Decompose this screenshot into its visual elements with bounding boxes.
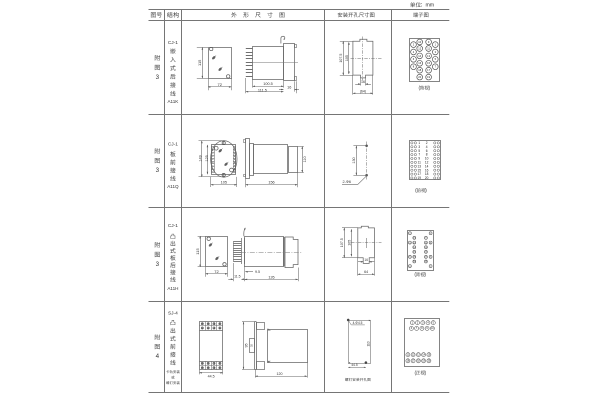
- svg-text:A11Q: A11Q: [167, 184, 179, 189]
- svg-text:2-Φ6: 2-Φ6: [343, 180, 352, 184]
- svg-text:9.5: 9.5: [255, 270, 260, 274]
- svg-text:72: 72: [217, 82, 222, 87]
- svg-text:A11K: A11K: [167, 99, 179, 104]
- svg-text:CJ-1: CJ-1: [168, 142, 178, 148]
- svg-text:16: 16: [364, 258, 368, 262]
- svg-text:3: 3: [156, 74, 160, 81]
- svg-text:105: 105: [345, 55, 349, 61]
- svg-text:100.5: 100.5: [263, 82, 273, 86]
- svg-text:(64): (64): [360, 89, 366, 93]
- svg-text:111.5: 111.5: [258, 88, 267, 92]
- svg-text:110: 110: [303, 156, 307, 162]
- svg-text:19: 19: [418, 176, 422, 180]
- svg-text:20: 20: [425, 176, 429, 180]
- svg-text:156: 156: [268, 181, 274, 185]
- svg-text:16: 16: [361, 80, 365, 84]
- svg-text:3: 3: [156, 261, 160, 268]
- svg-text:125: 125: [205, 155, 209, 161]
- svg-text:16: 16: [287, 86, 291, 90]
- svg-text:130: 130: [352, 157, 356, 163]
- svg-text:105: 105: [347, 240, 351, 246]
- svg-text:4: 4: [156, 353, 160, 360]
- svg-text:A11H: A11H: [167, 286, 178, 291]
- svg-text:44.5: 44.5: [351, 363, 357, 367]
- svg-text:72: 72: [214, 269, 219, 274]
- svg-text:120: 120: [277, 372, 283, 376]
- svg-text:mm: mm: [425, 3, 434, 9]
- svg-text:115: 115: [197, 59, 202, 66]
- svg-text:4-Φ4.5: 4-Φ4.5: [353, 321, 363, 325]
- svg-text:64: 64: [364, 270, 368, 274]
- svg-text:107.5: 107.5: [339, 54, 343, 63]
- svg-text:107.5: 107.5: [340, 238, 344, 247]
- svg-text:110: 110: [366, 341, 370, 346]
- svg-text:CJ-1: CJ-1: [168, 223, 178, 229]
- svg-text:95: 95: [245, 344, 249, 348]
- svg-text:105: 105: [221, 181, 227, 185]
- svg-text:44.5: 44.5: [208, 375, 215, 379]
- svg-text:CJ-1: CJ-1: [168, 40, 178, 46]
- svg-text:SJ-4: SJ-4: [168, 311, 178, 317]
- svg-text:149: 149: [199, 155, 203, 161]
- svg-text:126: 126: [268, 276, 274, 280]
- svg-text:3: 3: [156, 167, 160, 174]
- svg-text:115: 115: [195, 248, 200, 255]
- svg-text:11.5: 11.5: [234, 275, 240, 279]
